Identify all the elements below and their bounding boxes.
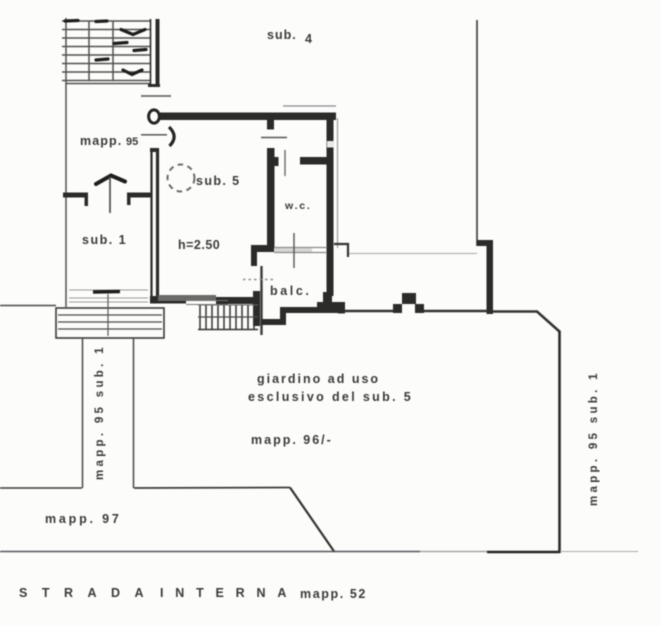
- svg-text:mapp. 97: mapp. 97: [45, 512, 122, 526]
- svg-text:w.c.: w.c.: [284, 200, 312, 212]
- svg-text:balc.: balc.: [270, 284, 312, 298]
- svg-text:mapp.: mapp.: [80, 134, 122, 148]
- svg-text:STRADA: STRADA: [19, 586, 158, 600]
- svg-text:sub. 5: sub. 5: [196, 174, 241, 188]
- svg-text:h=2.50: h=2.50: [178, 238, 220, 252]
- svg-text:sub. 1: sub. 1: [82, 233, 127, 247]
- svg-text:mapp. 52: mapp. 52: [300, 587, 367, 601]
- svg-text:INTERNA: INTERNA: [160, 586, 298, 600]
- svg-text:giardino ad uso: giardino ad uso: [257, 372, 380, 386]
- svg-text:mapp. 95 sub. 1: mapp. 95 sub. 1: [94, 344, 106, 480]
- svg-text:mapp. 95 sub. 1: mapp. 95 sub. 1: [588, 370, 600, 506]
- svg-text:95: 95: [126, 136, 138, 148]
- svg-text:esclusivo del sub. 5: esclusivo del sub. 5: [248, 390, 413, 404]
- svg-text:4: 4: [305, 32, 312, 46]
- svg-text:sub.: sub.: [267, 28, 297, 42]
- svg-text:mapp. 96/-: mapp. 96/-: [251, 433, 333, 447]
